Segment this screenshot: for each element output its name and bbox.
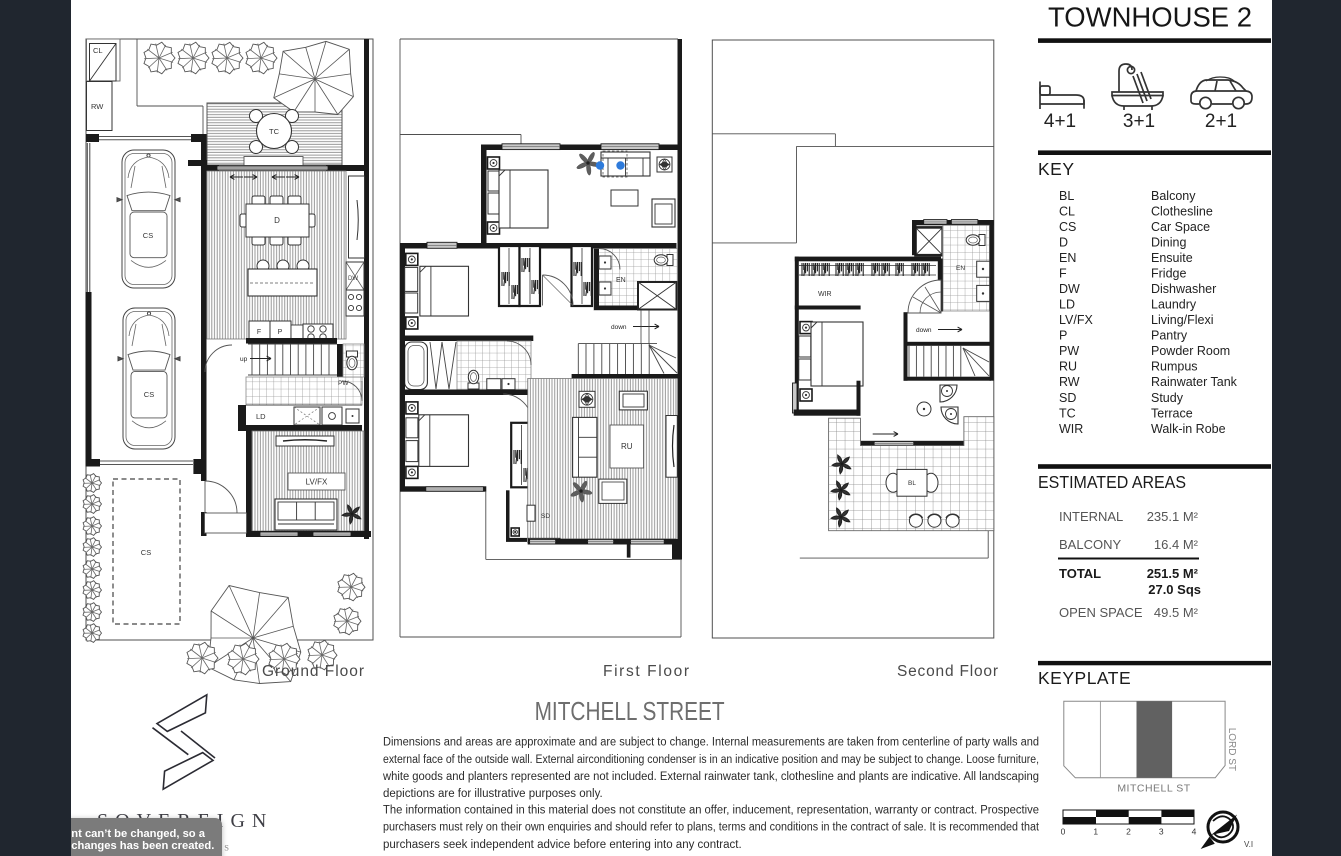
svg-text:DW: DW xyxy=(1059,282,1080,296)
svg-text:purchasers must rely on their: purchasers must rely on their own enquir… xyxy=(383,822,1040,834)
svg-text:CS: CS xyxy=(144,390,154,399)
svg-text:PW: PW xyxy=(338,380,349,387)
svg-text:CS: CS xyxy=(1059,220,1076,234)
svg-text:depictions are for illustrativ: depictions are for illustrative purposes… xyxy=(383,788,603,800)
svg-text:0: 0 xyxy=(1061,827,1066,837)
svg-text:KEYPLATE: KEYPLATE xyxy=(1038,668,1131,688)
svg-text:Powder Room: Powder Room xyxy=(1151,344,1230,358)
svg-text:D: D xyxy=(1059,236,1068,250)
svg-text:RU: RU xyxy=(621,442,633,451)
svg-text:LV/FX: LV/FX xyxy=(306,478,328,487)
svg-text:MITCHELL ST: MITCHELL ST xyxy=(1117,783,1190,795)
svg-text:CL: CL xyxy=(93,46,103,55)
svg-text:Living/Flexi: Living/Flexi xyxy=(1151,313,1214,327)
svg-text:TC: TC xyxy=(269,127,280,136)
svg-text:TOWNHOUSE 2: TOWNHOUSE 2 xyxy=(1048,2,1252,33)
svg-text:49.5 M²: 49.5 M² xyxy=(1154,605,1199,620)
svg-text:2+1: 2+1 xyxy=(1205,111,1237,132)
svg-text:WIR: WIR xyxy=(818,291,832,298)
svg-text:white goods and planters repre: white goods and planters represented are… xyxy=(382,771,1039,783)
svg-text:The information contained in t: The information contained in this materi… xyxy=(383,805,1039,817)
svg-text:LD: LD xyxy=(1059,298,1075,312)
svg-text:Dishwasher: Dishwasher xyxy=(1151,282,1216,296)
svg-text:Pantry: Pantry xyxy=(1151,329,1188,343)
svg-text:235.1 M²: 235.1 M² xyxy=(1147,509,1199,524)
svg-text:Study: Study xyxy=(1151,391,1184,405)
svg-text:CL: CL xyxy=(1059,205,1075,219)
svg-text:LD: LD xyxy=(256,412,266,421)
svg-text:MITCHELL STREET: MITCHELL STREET xyxy=(535,696,725,726)
svg-text:F: F xyxy=(1059,267,1067,281)
svg-text:P: P xyxy=(278,329,283,336)
svg-text:Balcony: Balcony xyxy=(1151,189,1196,203)
svg-text:down: down xyxy=(611,324,627,331)
svg-text:Laundry: Laundry xyxy=(1151,298,1197,312)
svg-text:Rumpus: Rumpus xyxy=(1151,360,1198,374)
svg-text:251.5 M²: 251.5 M² xyxy=(1147,566,1199,581)
svg-text:external face of the outside w: external face of the outside wall. Exter… xyxy=(383,754,1039,766)
svg-text:16.4 M²: 16.4 M² xyxy=(1154,537,1199,552)
svg-text:EN: EN xyxy=(956,265,965,272)
svg-text:Ground Floor: Ground Floor xyxy=(262,663,364,680)
svg-text:P: P xyxy=(1059,329,1067,343)
svg-text:RW: RW xyxy=(1059,375,1080,389)
svg-text:Ensuite: Ensuite xyxy=(1151,251,1193,265)
svg-text:Fridge: Fridge xyxy=(1151,267,1186,281)
svg-text:RU: RU xyxy=(1059,360,1077,374)
svg-text:1: 1 xyxy=(1093,827,1098,837)
svg-text:4+1: 4+1 xyxy=(1044,111,1076,132)
svg-text:Clothesline: Clothesline xyxy=(1151,205,1213,219)
svg-text:SD: SD xyxy=(1059,391,1076,405)
svg-text:Dimensions and areas are appro: Dimensions and areas are approximate and… xyxy=(383,737,1039,749)
svg-text:BL: BL xyxy=(1059,189,1074,203)
svg-text:CS: CS xyxy=(141,548,151,557)
svg-text:OPEN SPACE: OPEN SPACE xyxy=(1059,605,1143,620)
svg-text:Walk-in Robe: Walk-in Robe xyxy=(1151,422,1226,436)
svg-text:Dining: Dining xyxy=(1151,236,1186,250)
svg-text:INTERNAL: INTERNAL xyxy=(1059,509,1123,524)
svg-text:EN: EN xyxy=(616,277,626,284)
svg-text:27.0 Sqs: 27.0 Sqs xyxy=(1148,582,1201,597)
svg-text:PW: PW xyxy=(1059,344,1079,358)
svg-text:3+1: 3+1 xyxy=(1123,111,1155,132)
svg-text:2: 2 xyxy=(1126,827,1131,837)
svg-text:RW: RW xyxy=(91,102,104,111)
svg-text:4: 4 xyxy=(1192,827,1197,837)
svg-text:up: up xyxy=(240,356,248,363)
svg-text:EN: EN xyxy=(1059,251,1076,265)
svg-text:Rainwater Tank: Rainwater Tank xyxy=(1151,375,1238,389)
svg-text:3: 3 xyxy=(1159,827,1164,837)
svg-text:V.I: V.I xyxy=(1244,840,1253,849)
svg-text:DW: DW xyxy=(348,276,358,282)
svg-text:purchasers seek independent ad: purchasers seek independent advice befor… xyxy=(383,839,742,851)
svg-text:down: down xyxy=(916,327,932,334)
svg-text:First Floor: First Floor xyxy=(603,663,689,680)
svg-text:CS: CS xyxy=(143,231,153,240)
svg-text:Second Floor: Second Floor xyxy=(897,663,998,680)
svg-text:LV/FX: LV/FX xyxy=(1059,313,1093,327)
svg-text:F: F xyxy=(257,329,261,336)
svg-text:SD: SD xyxy=(541,513,550,520)
svg-text:KEY: KEY xyxy=(1038,159,1075,179)
svg-text:Terrace: Terrace xyxy=(1151,406,1193,420)
svg-text:TC: TC xyxy=(1059,406,1076,420)
svg-text:WIR: WIR xyxy=(1059,422,1083,436)
svg-text:ESTIMATED AREAS: ESTIMATED AREAS xyxy=(1038,472,1186,492)
svg-text:BALCONY: BALCONY xyxy=(1059,537,1121,552)
svg-text:LORD ST: LORD ST xyxy=(1226,728,1237,771)
svg-text:Car Space: Car Space xyxy=(1151,220,1210,234)
svg-text:D: D xyxy=(274,216,280,225)
svg-text:BL: BL xyxy=(908,480,916,487)
svg-text:TOTAL: TOTAL xyxy=(1059,566,1101,581)
